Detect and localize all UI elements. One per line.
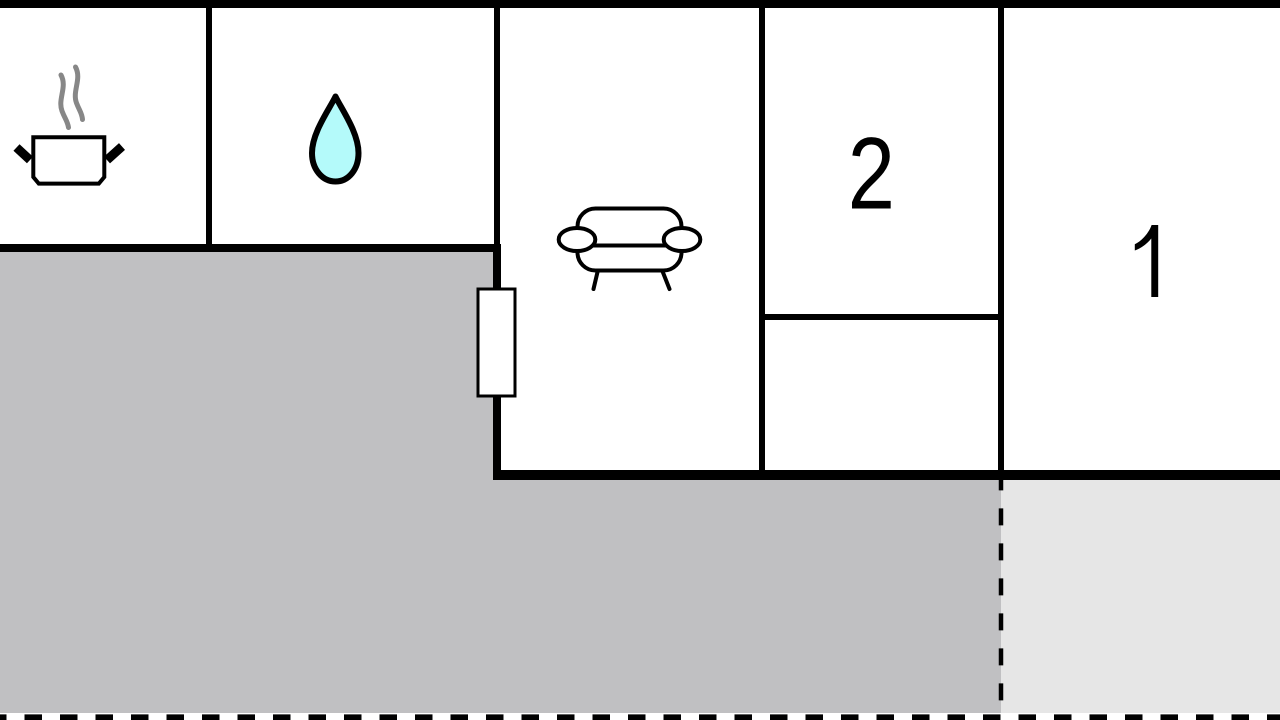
- svg-text:2: 2: [848, 116, 895, 230]
